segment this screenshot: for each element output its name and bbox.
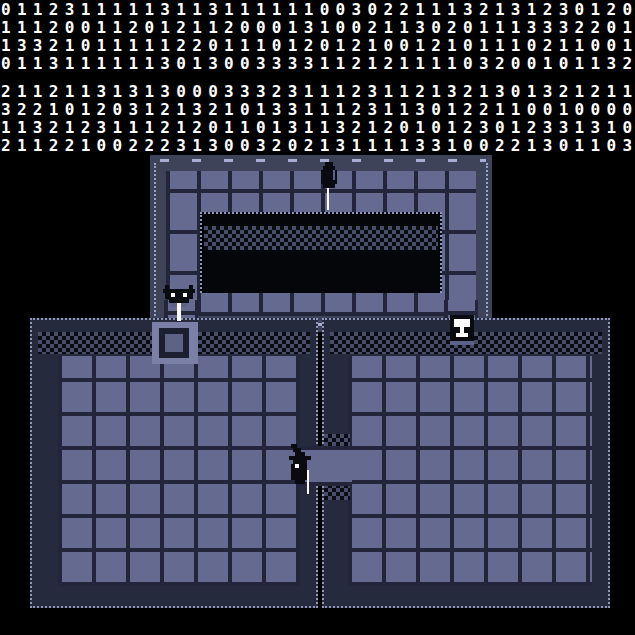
wall-dots-right [486, 163, 488, 323]
bat-statue-sprite[interactable] [161, 285, 197, 323]
digit-row-5: 2112113131300033323111231121321301321211 [1, 83, 635, 101]
pedestal-tile[interactable] [152, 322, 198, 364]
pedestal-hatch [159, 328, 189, 358]
tile-code-readout: 0112311111311311111100302211132131230120… [1, 1, 635, 155]
bat-statue-icon [161, 285, 197, 323]
hooded-figure-sprite[interactable] [317, 162, 341, 214]
goblet-statue-sprite[interactable] [446, 315, 478, 351]
inner-chamber-south-wall [204, 226, 438, 250]
wall-dots-left [154, 163, 156, 323]
digit-row-8: 2112210022231300320213111133100221301103 [1, 137, 635, 155]
digit-row-7: 1132123111212011013113212010123012331310 [1, 119, 635, 137]
digit-row-2: 1112001120121120001310021130201113332201 [1, 19, 635, 37]
room-right [322, 318, 610, 608]
digit-row-1: 0112311111311311111100302211132131230120 [1, 1, 635, 19]
witch-figure-icon [287, 444, 317, 496]
goblet-statue-icon [446, 315, 478, 351]
digit-row-6: 3221012031213210133111231130122110010000 [1, 101, 635, 119]
digit-row-4: 0113111111301300333311212111103200101132 [1, 55, 635, 73]
inner-chamber [200, 212, 442, 293]
room-right-floor [348, 356, 592, 586]
game-screen: 0112311111311311111100302211132131230120… [0, 0, 635, 635]
room-left-floor [58, 356, 300, 586]
witch-figure-sprite[interactable] [287, 444, 317, 496]
passage-wall-lower [324, 484, 350, 500]
hooded-figure-icon [317, 162, 341, 214]
digit-row-3: 1332101111122011101201210012101110211001 [1, 37, 635, 55]
